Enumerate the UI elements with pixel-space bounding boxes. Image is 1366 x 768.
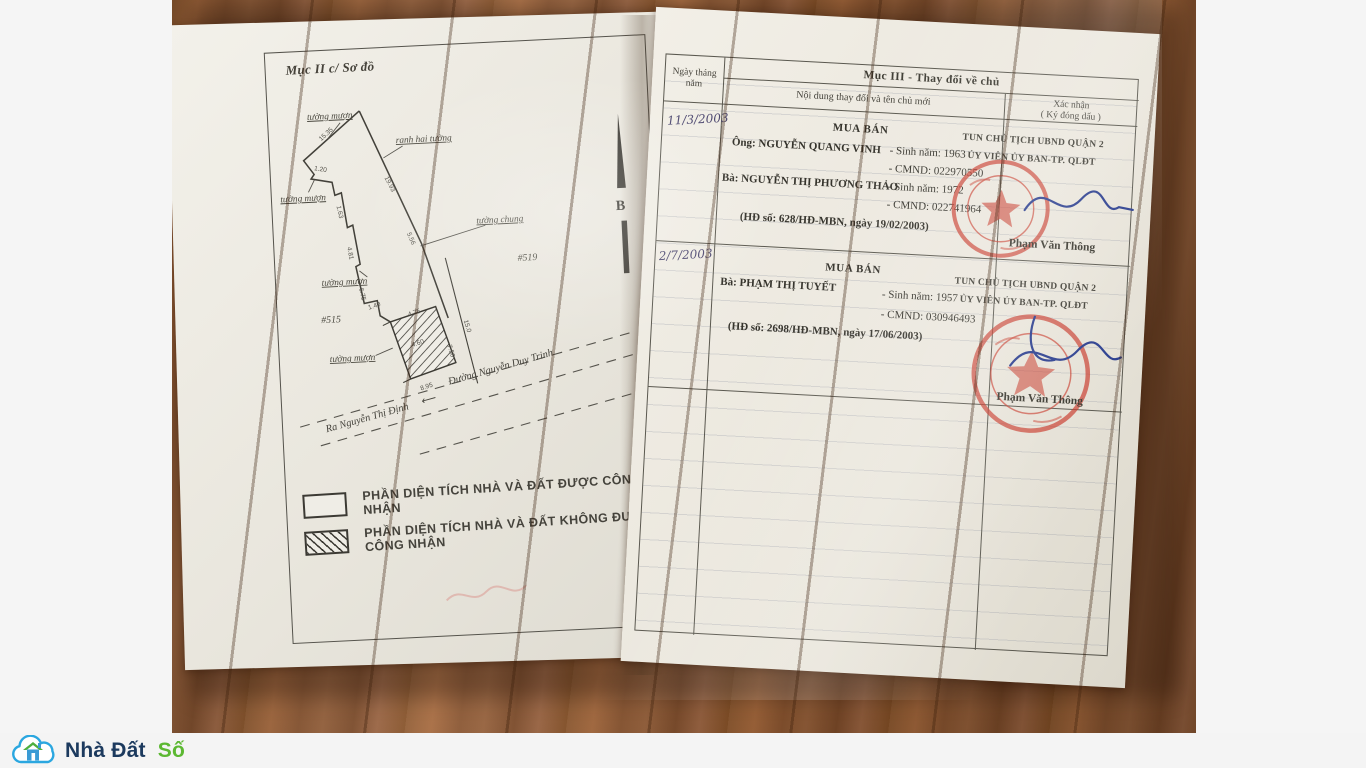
footer-strip	[0, 733, 1366, 768]
right-page: Mục III - Thay đổi về chủ Ngày tháng năm…	[621, 7, 1161, 688]
label-boundary: ranh hai tường	[396, 133, 453, 146]
ownership-change-table: Mục III - Thay đổi về chủ Ngày tháng năm…	[634, 53, 1139, 656]
legend-swatch-plain	[302, 492, 347, 519]
dim-1: 19.93	[383, 175, 397, 193]
entry2-contract: (HĐ số: 2698/HĐ-MBN, ngày 17/06/2003)	[728, 320, 923, 343]
entry2-type: MUA BÁN	[825, 261, 881, 276]
label-wall-borrowed-1: tường mượn	[307, 111, 353, 123]
table-vline-1	[693, 58, 725, 635]
entry1-party1-name: Ông: NGUYỄN QUANG VINH	[732, 136, 882, 156]
brand-text-accent: Số	[158, 739, 185, 763]
entry1-confirm-line1: TUN CHỦ TỊCH UBND QUẬN 2	[962, 133, 1104, 151]
dim-4: 4.81	[345, 246, 354, 260]
entry1-signature	[1018, 170, 1141, 232]
document-photo: Mục II c/ Sơ đồ	[172, 0, 1196, 733]
entry1-contract: (HĐ số: 628/HĐ-MBN, ngày 19/02/2003)	[740, 211, 930, 233]
entry2-party1-birth: - Sinh năm: 1957	[882, 288, 959, 304]
dim-3: 1.63	[335, 205, 345, 219]
legend: PHẦN DIỆN TÍCH NHÀ VÀ ĐẤT ĐƯỢC CÔNG NHẬN…	[302, 473, 665, 564]
entry2-confirm-line1: TUN CHỦ TỊCH UBND QUẬN 2	[954, 276, 1096, 294]
col-header-confirm: Xác nhận ( Ký đóng dấu )	[1006, 97, 1137, 126]
site-plan-frame: Mục II c/ Sơ đồ	[264, 34, 674, 644]
dim-5: 6.75	[357, 287, 367, 301]
label-wall-borrowed-4: tường mượn	[330, 353, 376, 365]
label-parcel-515: #515	[321, 314, 341, 326]
entry2-party1-name: Bà: PHẠM THỊ TUYẾT	[720, 276, 837, 294]
legend-swatch-hatched	[304, 529, 349, 556]
road-arrow-icon: ⟵	[420, 393, 438, 408]
dim-2: 1.20	[314, 165, 328, 174]
entry1-date: 11/3/2003	[667, 111, 729, 128]
parcel-tick2	[403, 379, 411, 383]
nhadatso-logo: Nhà Đất Số	[10, 735, 185, 767]
cloud-house-icon	[10, 735, 58, 767]
left-section-title: Mục II c/ Sơ đồ	[285, 58, 374, 78]
label-parcel-519: #519	[517, 252, 537, 264]
entry1-type: MUA BÁN	[832, 122, 888, 137]
plot-outline	[301, 110, 390, 326]
entry2-party1-cmnd: - CMND: 030946493	[880, 308, 975, 325]
label-road-name: Đường Nguyễn Duy Trinh	[446, 348, 554, 388]
col-header-date: Ngày tháng năm	[665, 66, 724, 91]
entry2-signature	[1001, 311, 1129, 388]
dim-6: 5.56	[405, 232, 417, 247]
entry2-date: 2/7/2003	[658, 246, 713, 263]
land-plot-diagram: B tường mượn ranh hai tường	[271, 81, 661, 485]
faint-red-scribble	[441, 571, 533, 615]
entry1-party2-name: Bà: NGUYỄN THỊ PHƯƠNG THẢO	[722, 172, 899, 194]
road-lines	[296, 331, 654, 460]
label-wall-shared: tường chung	[476, 214, 524, 226]
label-road-direction: Ra Nguyễn Thị Định	[324, 401, 410, 435]
brand-text-primary: Nhà Đất	[65, 739, 146, 763]
screenshot-root: Mục II c/ Sơ đồ	[0, 0, 1366, 768]
parcel-tick	[383, 322, 391, 326]
boundary-line	[445, 257, 477, 385]
label-wall-borrowed-2: tường mượn	[280, 193, 326, 205]
